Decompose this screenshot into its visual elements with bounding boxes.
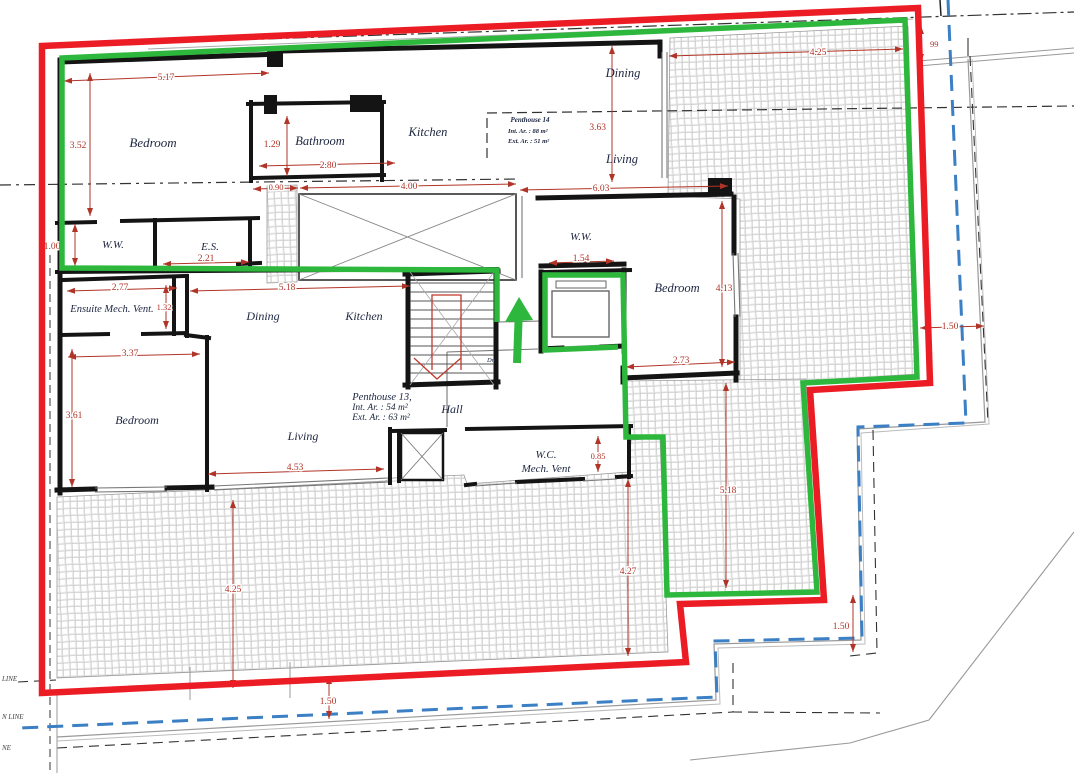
site-label-1: LINE [1,675,18,683]
entrance-arrow-icon [505,297,533,363]
terrace-hatch-bottom [57,438,668,678]
room-label-ph14-kitchen: Kitchen [408,125,448,139]
dim-ph14-ww-h: 1.00 [44,242,61,252]
dim-terrace-right-h: 5.18 [720,486,737,496]
room-label-ph14-bedroom-right: Bedroom [654,281,699,295]
dim-ph14-ww-right-w: 1.54 [573,254,590,264]
dim-ph14-bedroom-right-h: 4.13 [716,284,733,294]
room-label-ph13-wc: W.C. [536,449,557,461]
ph13-ext-area: Ext. Ar. : 63 m² [351,413,410,423]
stair [405,271,498,387]
dim-ph13-ensuite-h: 1.32 [157,302,172,312]
dim-ph13-wc-h: 0.85 [591,451,606,461]
duct-shaft [401,433,443,480]
terrace-hatch-top-right [668,26,918,383]
site-dash-mid-left [0,179,520,185]
room-label-ph14-bathroom: Bathroom [295,134,345,148]
room-label-ph13-ensuite: Ensuite Mech. Vent. [69,304,153,315]
dim-site-offset-bottom: 1.50 [320,697,337,707]
room-label-ph13-mech-vent: Mech. Vent [521,463,572,475]
site-dash-bottom [57,712,733,748]
room-label-ph14-living: Living [605,152,638,166]
ph14-title: Penthouse 14 [510,116,550,124]
dim-ph14-bedroom-h: 3.52 [70,141,87,151]
room-label-ph14-es: E.S. [200,241,219,253]
site-dash-bottom-left-tick [18,680,56,682]
stair-down-label: Dn [486,357,495,364]
dim-ph14-bedroom-right-w: 2.73 [673,356,690,366]
ph13-title: Penthouse 13, [351,392,412,403]
dim-ph13-bedroom-w: 3.37 [122,349,139,359]
dim-ph14-living-w: 6.03 [593,184,610,194]
dim-ph13-living-w: 4.53 [287,463,304,473]
dim-ph13-bedroom-h: 3.61 [66,411,83,421]
ph13-int-area: Int. Ar. : 54 m² [351,403,408,413]
dim-terrace-top-w: 4.25 [810,48,827,58]
site-black-tick-top-right-1 [940,0,941,16]
dim-site-offset-right: 1.50 [942,322,959,332]
site-label-2: N LINE [1,713,24,721]
room-label-ph13-hall: Hall [440,402,463,416]
dim-terrace-left-h: 4.25 [225,585,242,595]
dim-terrace-mid-h: 4.27 [620,567,637,577]
ph14-int-area: Int. Ar. : 88 m² [507,128,549,135]
floor-plan-canvas: Bedroom Bathroom Kitchen Dining Living W… [0,0,1074,773]
floor-plan-svg: Bedroom Bathroom Kitchen Dining Living W… [0,0,1074,773]
room-label-ph14-bedroom: Bedroom [129,135,176,150]
dim-terrace-top-e: 99 [930,39,939,49]
ph14-ext-area: Ext. Ar. : 51 m² [507,138,550,145]
dim-ph14-dining-h: 3.63 [589,123,606,133]
dim-ph14-shaft-w: 0.90 [269,182,284,192]
dim-ph14-bathroom-w: 2.80 [320,161,337,171]
room-label-ph13-living: Living [287,429,319,443]
dim-ph14-void-w: 4.00 [401,182,418,192]
room-label-ph14-ww-right: W.W. [570,231,592,243]
site-label-3: NE [1,744,12,752]
dim-ph14-bathroom-h: 1.29 [264,140,281,150]
dim-ph13-kitchen-w: 5.18 [279,283,296,293]
room-label-ph14-ww-left: W.W. [102,239,124,251]
room-label-ph14-dining: Dining [605,66,641,80]
room-label-ph13-bedroom: Bedroom [115,413,159,427]
dim-site-offset-bottom-right: 1.50 [833,622,850,632]
room-label-ph13-kitchen: Kitchen [344,309,382,323]
dim-ph14-bedroom-w: 5.17 [158,73,175,83]
dim-ph13-ensuite-w: 2.77 [112,283,129,293]
site-dash-bottom-step [733,663,880,713]
room-label-ph13-dining: Dining [245,309,279,323]
dim-ph14-es-w: 2.21 [198,254,215,264]
site-dash-right [970,56,988,423]
